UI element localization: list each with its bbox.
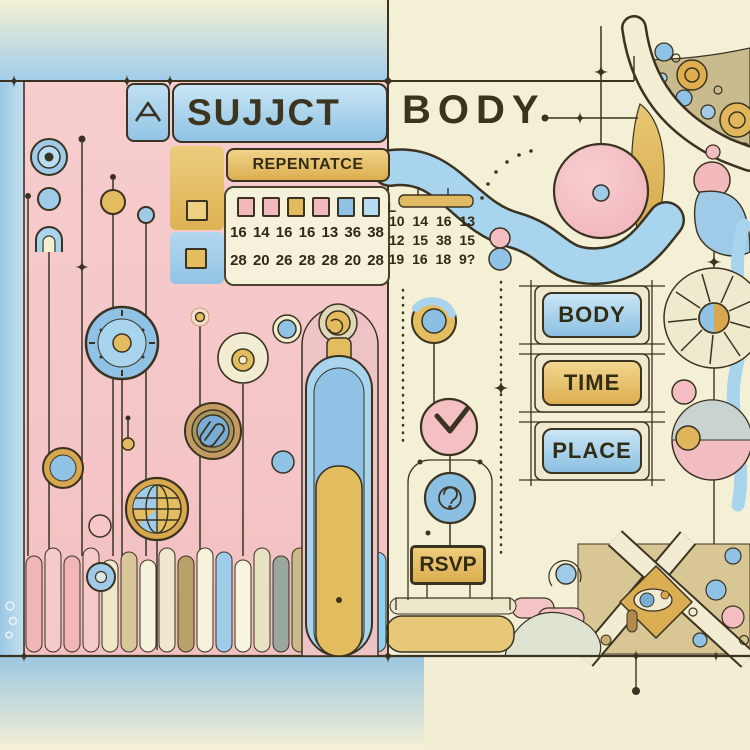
place-button[interactable]: PLACE <box>542 428 642 474</box>
calendar-panel: L 16 14 16 16 13 36 38 28 20 26 28 28 20… <box>224 186 390 286</box>
rsvp-button[interactable]: RSVP <box>410 545 486 585</box>
left-edge-strip <box>0 81 24 656</box>
gold-ring-ball <box>43 448 83 488</box>
mini-calendar-row: 12 15 38 15 <box>388 231 476 250</box>
day-square[interactable] <box>337 197 355 217</box>
lattice-corner <box>578 538 750 660</box>
arch-pill <box>302 304 378 656</box>
blue-ball <box>138 207 154 223</box>
yellow-ball <box>101 190 125 214</box>
day-square[interactable] <box>262 197 280 217</box>
target-icon <box>31 139 67 175</box>
tile-yellow[interactable] <box>170 146 224 230</box>
gold-band <box>386 616 514 652</box>
footer-left-gradient <box>0 656 424 750</box>
home-icon <box>128 85 168 140</box>
ring-ball <box>273 315 301 343</box>
day-squares: L <box>237 197 396 217</box>
duo-circle <box>672 400 750 480</box>
subject-input[interactable]: SUJJCT <box>172 83 388 143</box>
blue-ball <box>272 451 294 473</box>
home-tile[interactable] <box>126 83 170 142</box>
subject-label: SUJJCT <box>187 92 341 134</box>
donut-badge <box>218 333 268 383</box>
cream-band <box>390 598 516 614</box>
dial-icon <box>86 307 158 379</box>
day-square[interactable] <box>287 197 305 217</box>
globe-badge[interactable] <box>126 478 188 540</box>
mini-calendar-row: 19 16 18 9? <box>388 250 476 269</box>
time-button[interactable]: TIME <box>542 360 642 406</box>
yellow-ball <box>122 438 134 450</box>
body-button[interactable]: BODY <box>542 292 642 338</box>
repentance-button[interactable]: REPENTATCE <box>226 148 390 182</box>
rsvp-label: RSVP <box>419 553 476 577</box>
day-square[interactable] <box>362 197 380 217</box>
tile-marker <box>185 248 207 269</box>
attachment-badge[interactable] <box>185 403 241 459</box>
pink-ball <box>89 515 111 537</box>
mini-calendar-row: 10 14 16 13 <box>388 212 476 231</box>
stage: SUJJCT REPENTATCE L 16 14 16 16 13 36 38… <box>0 0 750 750</box>
repentance-label: REPENTATCE <box>252 156 363 174</box>
mini-calendar: 10 14 16 13 12 15 38 15 19 16 18 9? <box>388 212 476 269</box>
pink-node-circle <box>554 144 648 238</box>
question-circle[interactable] <box>425 473 475 523</box>
body-button-label: BODY <box>558 302 626 328</box>
time-button-label: TIME <box>564 370 621 396</box>
calendar-number-row: 28 20 26 28 28 20 28 <box>226 252 388 269</box>
pink-ball <box>490 228 510 248</box>
halo-pin <box>191 308 209 326</box>
blue-ball <box>489 248 511 270</box>
body-title: BODY <box>402 88 546 133</box>
blue-donut <box>87 563 115 591</box>
place-button-label: PLACE <box>552 438 632 464</box>
day-square[interactable] <box>237 197 255 217</box>
blue-ball <box>38 188 60 210</box>
magnet-icon <box>36 227 62 252</box>
day-square[interactable] <box>312 197 330 217</box>
header-left-band <box>0 0 388 81</box>
tile-marker <box>186 200 208 221</box>
calendar-number-row: 16 14 16 16 13 36 38 <box>226 224 388 241</box>
tile-blue[interactable] <box>170 232 224 284</box>
check-circle[interactable] <box>421 399 477 455</box>
pink-ball <box>672 380 696 404</box>
